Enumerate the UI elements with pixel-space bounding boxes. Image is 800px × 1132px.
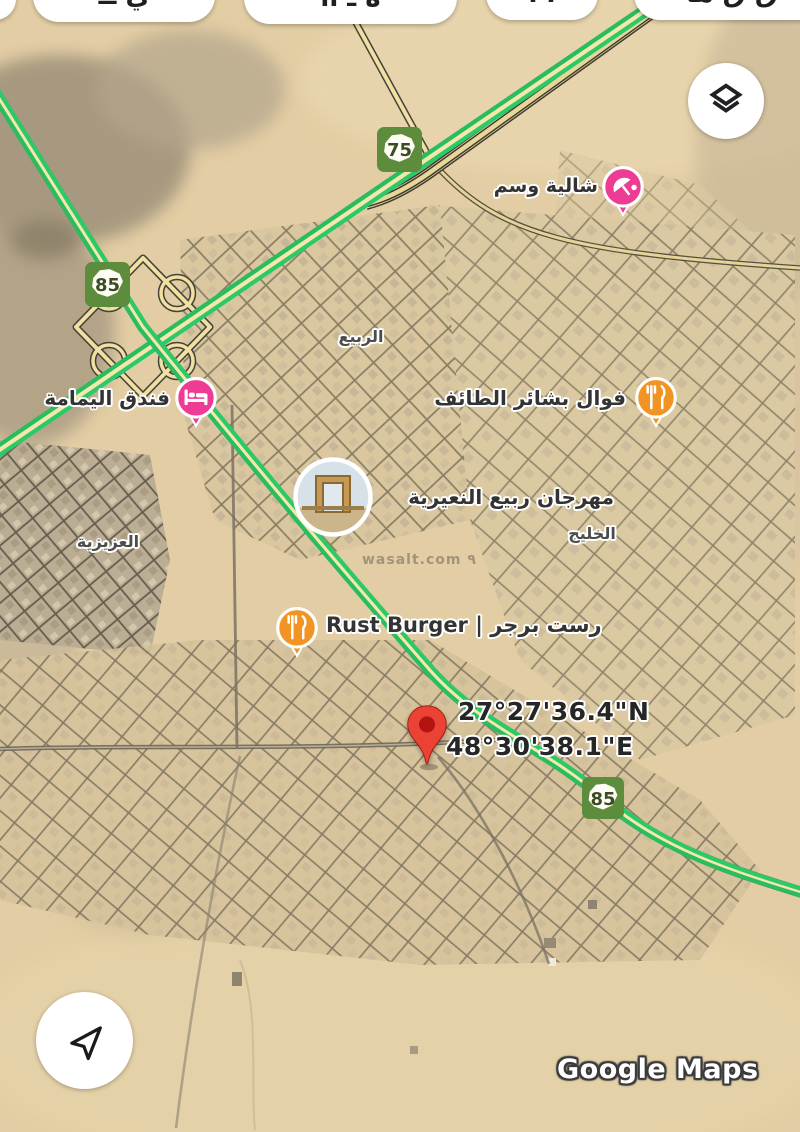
poi-label: فوال بشائر الطائف <box>412 386 626 410</box>
poi-label: شالية وسم <box>468 175 598 197</box>
dropped-pin[interactable] <box>404 704 450 766</box>
beach-umbrella-icon <box>601 165 645 217</box>
layers-button[interactable] <box>688 63 764 139</box>
marker-longitude-label: 48°30'38.1"E <box>446 732 634 761</box>
poi-label: مهرجان ربيع النعيرية <box>378 485 614 509</box>
route-shield-85: 85 <box>85 262 130 307</box>
area-label-alrabie: الربيع <box>318 327 404 346</box>
map-screen: ي ــ ة ـ اا ا ا ق ق ها 75 85 <box>0 0 800 1132</box>
category-chip[interactable]: ق ق ها <box>634 0 800 20</box>
google-maps-watermark: Google Maps <box>557 1054 759 1085</box>
navigation-arrow-icon <box>61 1017 109 1065</box>
chip-label: ا ا <box>486 0 598 7</box>
chip-label: ق ق ها <box>634 0 800 7</box>
chip-label: ة ـ اا <box>244 0 457 11</box>
locate-button[interactable] <box>36 992 133 1089</box>
route-shield-75: 75 <box>377 127 422 172</box>
layers-icon <box>705 80 747 122</box>
poi-label: Rust Burger | رست برجر <box>326 613 602 637</box>
hotel-bed-icon <box>174 376 218 428</box>
restaurant-fork-knife-icon <box>634 376 678 428</box>
category-chip[interactable]: ا ا <box>486 0 598 20</box>
category-chip[interactable]: ي ــ <box>33 0 215 22</box>
photo-thumbnail-icon <box>292 456 374 538</box>
poi-label: فندق اليمامة <box>22 386 170 410</box>
chip-label: ي ــ <box>33 0 215 9</box>
area-label-alaziziyah: العزيزية <box>58 532 158 551</box>
area-label-alkhaleej: الخليج <box>548 524 636 543</box>
route-shield-85: 85 <box>582 777 624 819</box>
restaurant-fork-knife-icon <box>275 606 319 658</box>
marker-latitude-label: 27°27'36.4"N <box>458 697 649 726</box>
site-watermark: wasalt.com ٩ <box>362 552 476 568</box>
category-chip[interactable]: ة ـ اا <box>244 0 457 24</box>
